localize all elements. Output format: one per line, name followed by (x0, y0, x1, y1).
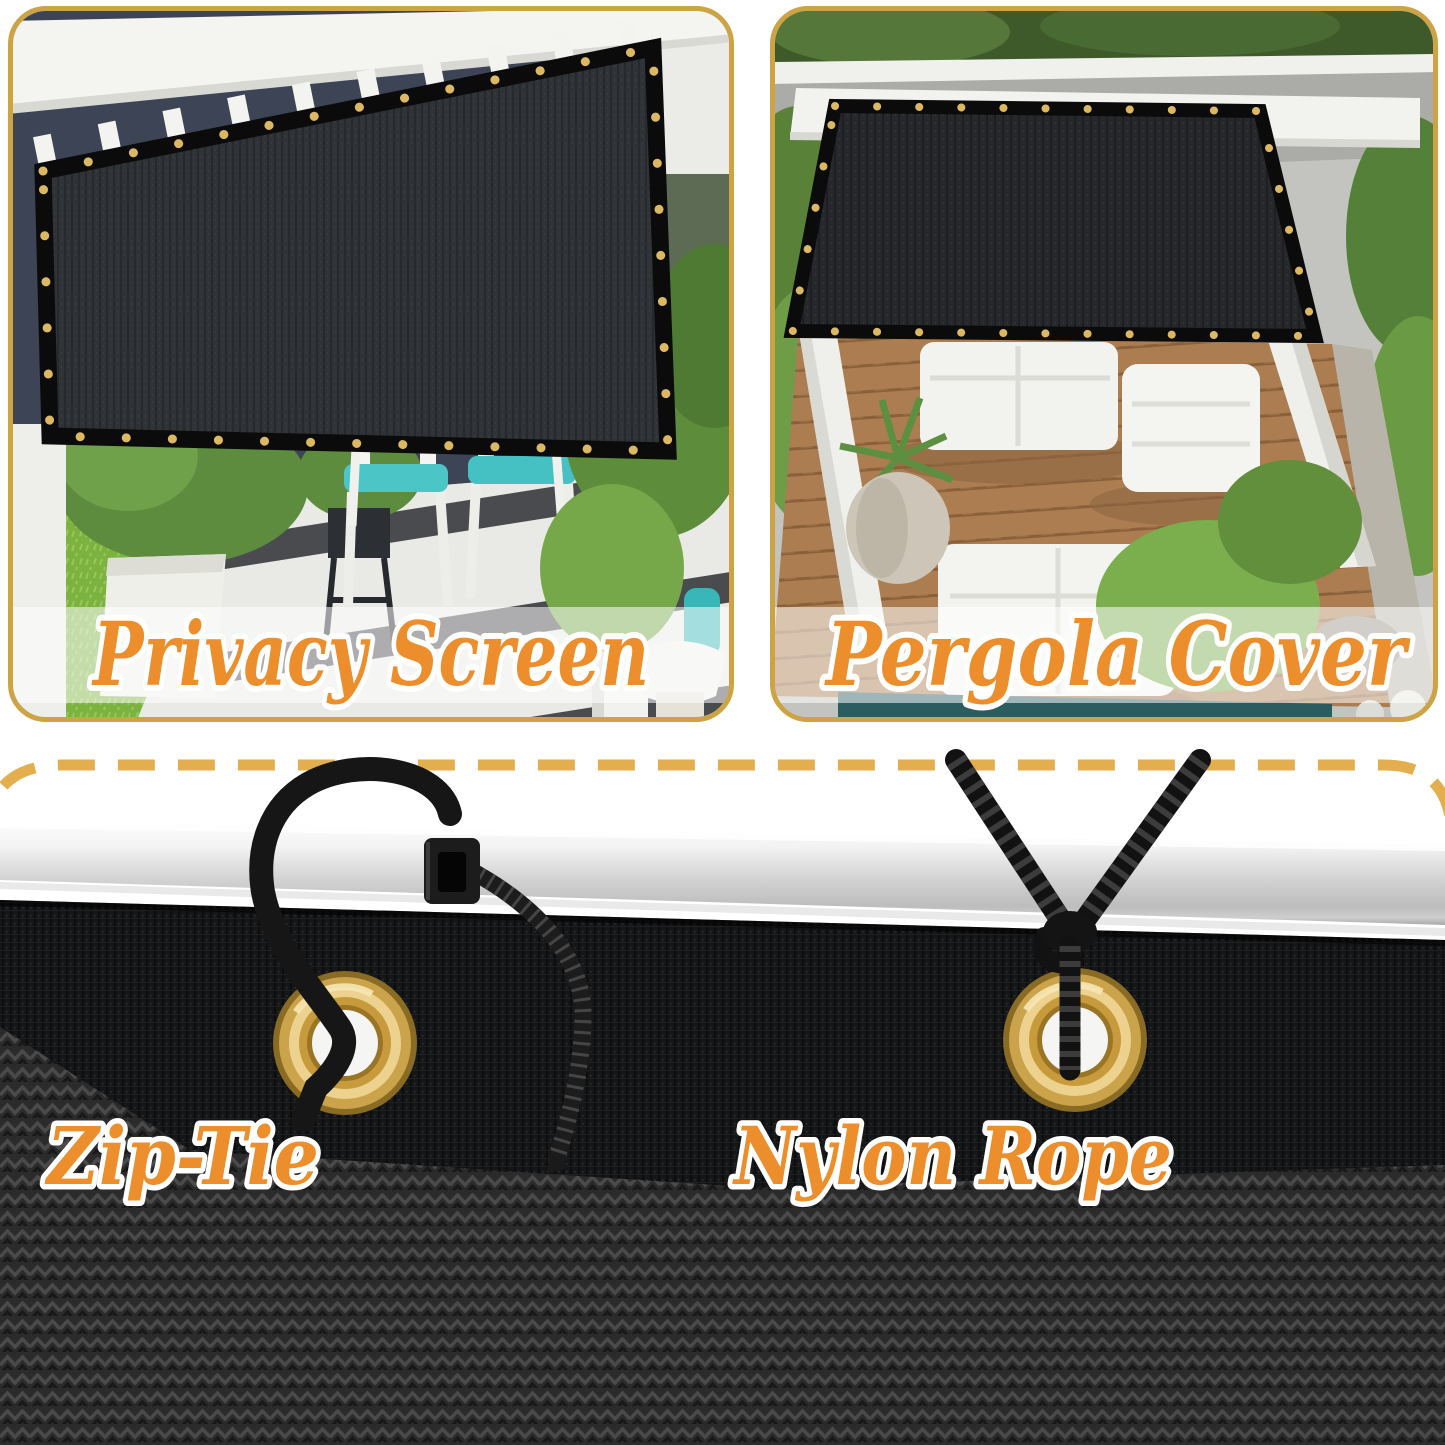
plant-stand (328, 508, 390, 558)
pergola-cover-mesh (792, 106, 1315, 336)
privacy-screen-panel: Privacy Screen (8, 6, 734, 722)
product-image: Privacy Screen (0, 0, 1445, 1445)
privacy-screen-label: Privacy Screen (91, 602, 649, 706)
pergola-cover-photo: Pergola Cover (770, 6, 1438, 722)
nylon-rope-label: Nylon Rope (731, 1109, 1172, 1203)
mounting-detail-photo: Zip-Tie Nylon Rope (0, 722, 1445, 1445)
pergola-cover-panel: Pergola Cover (770, 6, 1438, 722)
pergola-cover-label: Pergola Cover (823, 602, 1410, 706)
zip-tie-label: Zip-Tie (44, 1109, 319, 1203)
privacy-screen-photo: Privacy Screen (8, 6, 734, 722)
